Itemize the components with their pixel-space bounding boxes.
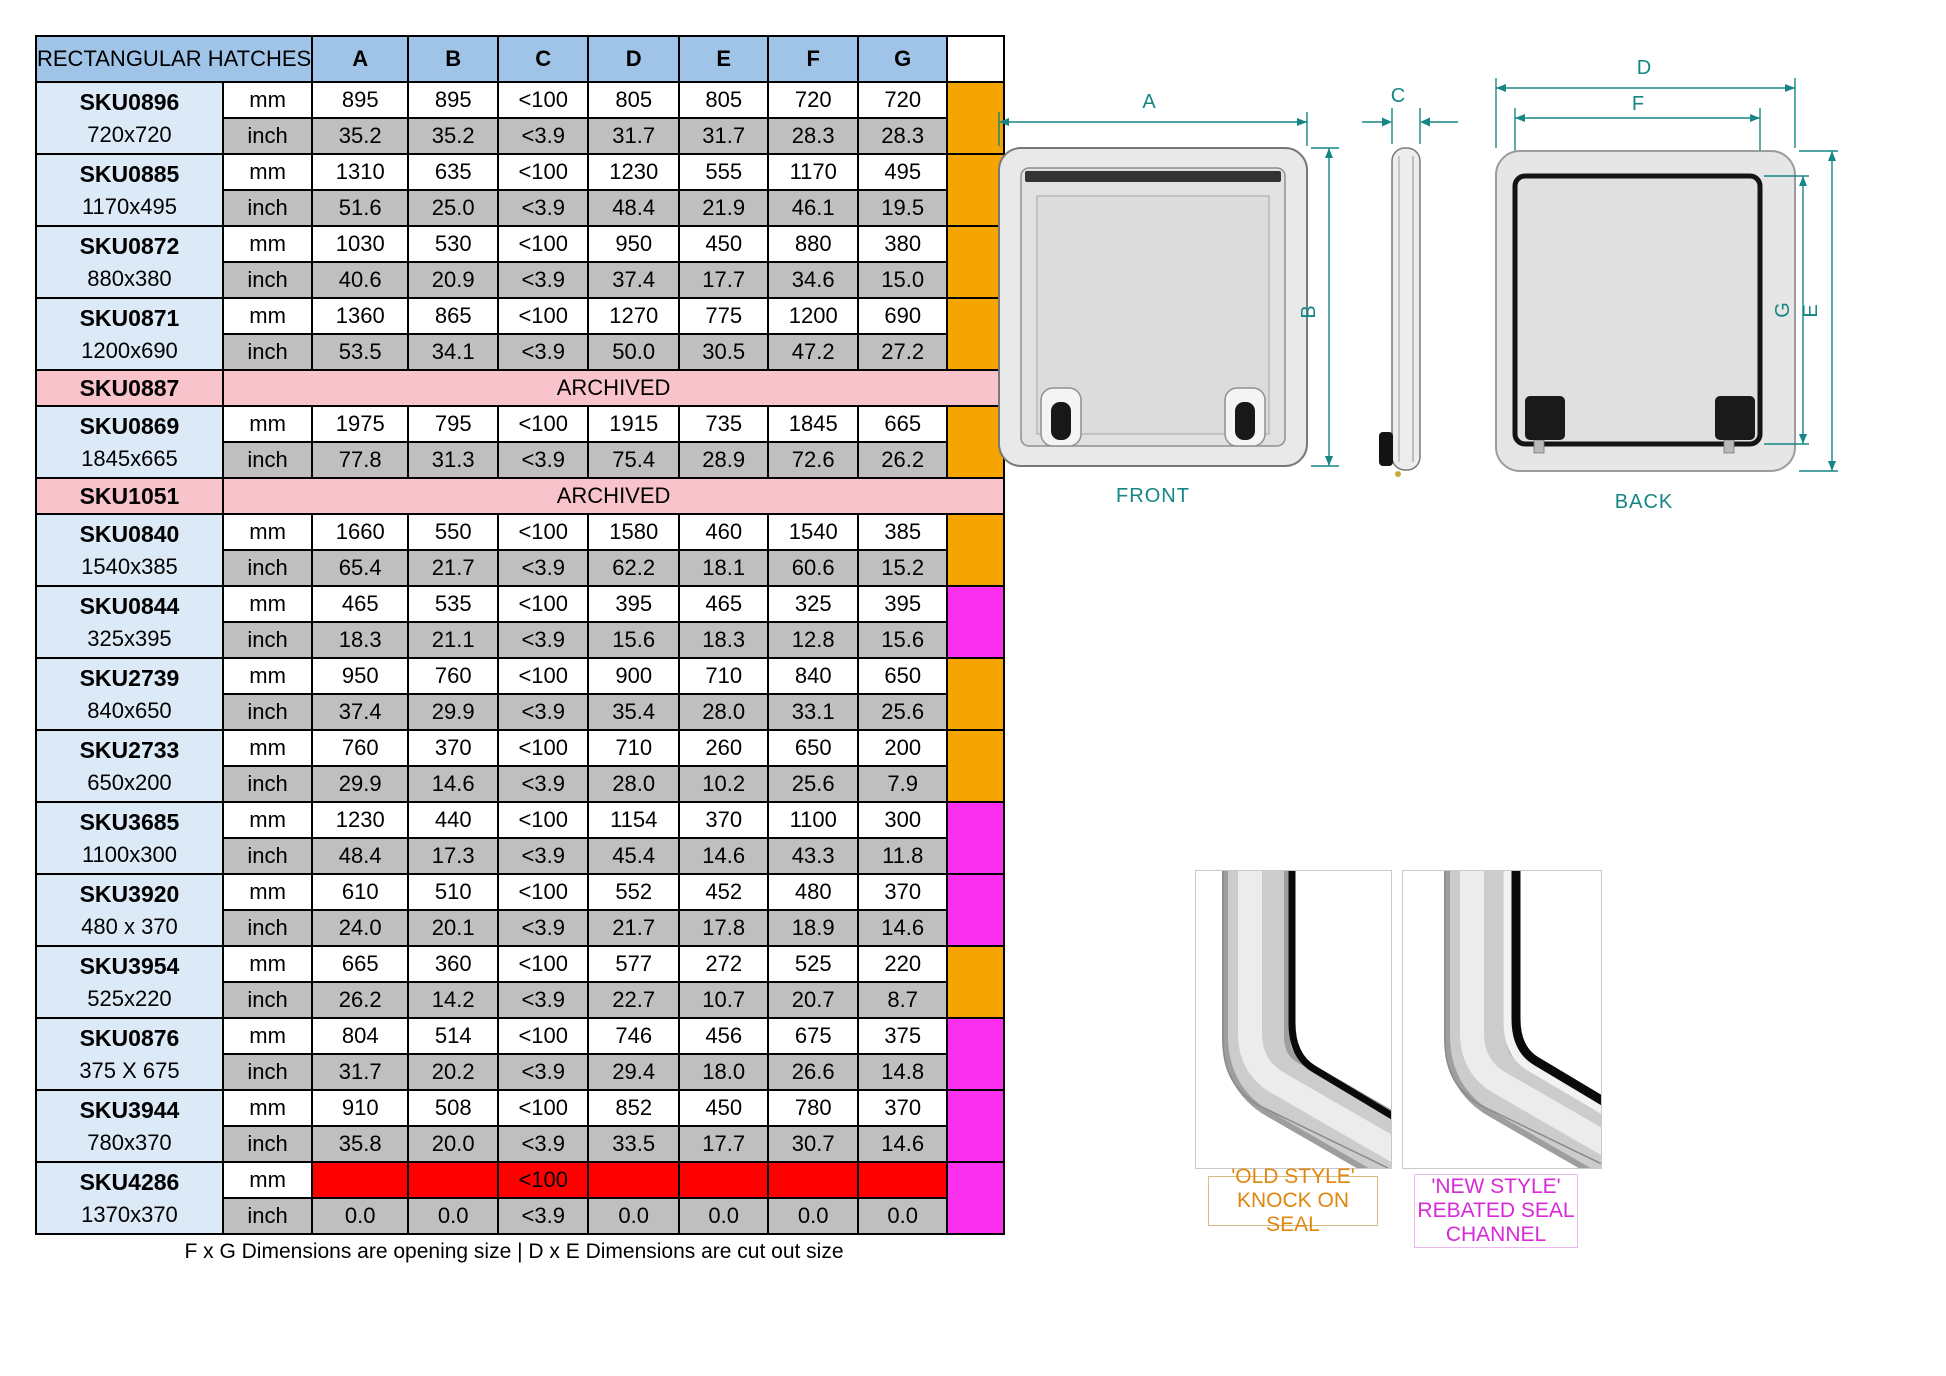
sku-cell: SKU2733650x200 <box>36 730 223 802</box>
value-cell-inch: 20.0 <box>408 1126 498 1162</box>
value-cell-mm: 1100 <box>768 802 858 838</box>
value-cell-inch: 77.8 <box>312 442 408 478</box>
dim-label-g: G <box>1772 302 1794 318</box>
new-style-caption: 'NEW STYLE' REBATED SEAL CHANNEL <box>1414 1174 1578 1248</box>
value-cell-mm <box>768 1162 858 1198</box>
value-cell-inch: 14.6 <box>408 766 498 802</box>
sku-row-mm: SKU42861370x370mm<100 <box>36 1162 1004 1198</box>
unit-cell-inch: inch <box>223 622 312 658</box>
unit-cell-inch: inch <box>223 694 312 730</box>
color-swatch-cell <box>947 730 1004 802</box>
sku-row-mm: SKU3954525x220mm665360<100577272525220 <box>36 946 1004 982</box>
front-view-label: FRONT <box>1116 485 1190 507</box>
sku-cell: SKU08401540x385 <box>36 514 223 586</box>
value-cell-inch: 14.6 <box>858 910 947 946</box>
unit-cell-mm: mm <box>223 658 312 694</box>
value-cell-mm: 525 <box>768 946 858 982</box>
value-cell-mm: 530 <box>408 226 498 262</box>
arrow-icon <box>1828 461 1836 471</box>
value-cell-inch: 17.8 <box>679 910 768 946</box>
value-cell-inch: 51.6 <box>312 190 408 226</box>
value-cell-inch: 20.7 <box>768 982 858 1018</box>
column-header-c: C <box>498 36 588 82</box>
value-cell-mm: 760 <box>312 730 408 766</box>
sku-row-mm: SKU2733650x200mm760370<100710260650200 <box>36 730 1004 766</box>
new-style-seal-image <box>1402 870 1602 1169</box>
value-cell-inch: 53.5 <box>312 334 408 370</box>
value-cell-mm: 370 <box>408 730 498 766</box>
value-cell-mm: 456 <box>679 1018 768 1054</box>
value-cell-inch: 45.4 <box>588 838 679 874</box>
value-cell-mm: 690 <box>858 298 947 334</box>
latch-handle-left <box>1051 402 1071 440</box>
back-latch-left <box>1525 396 1565 440</box>
value-cell-inch: 50.0 <box>588 334 679 370</box>
value-cell-inch: 22.7 <box>588 982 679 1018</box>
value-cell-inch: 28.3 <box>768 118 858 154</box>
value-cell-inch: <3.9 <box>498 622 588 658</box>
value-cell-inch: 27.2 <box>858 334 947 370</box>
value-cell-mm: 1230 <box>312 802 408 838</box>
hinge-pin-left <box>1534 440 1544 453</box>
unit-cell-mm: mm <box>223 1090 312 1126</box>
value-cell-mm: 746 <box>588 1018 679 1054</box>
value-cell-inch: 28.9 <box>679 442 768 478</box>
value-cell-mm: 804 <box>312 1018 408 1054</box>
sku-size-label: 1200x690 <box>37 335 222 366</box>
value-cell-inch: 31.7 <box>679 118 768 154</box>
value-cell-mm: 610 <box>312 874 408 910</box>
value-cell-mm: <100 <box>498 82 588 118</box>
value-cell-mm <box>588 1162 679 1198</box>
unit-cell-mm: mm <box>223 298 312 334</box>
value-cell-inch: 18.0 <box>679 1054 768 1090</box>
value-cell-inch: 15.2 <box>858 550 947 586</box>
sku-label: SKU4286 <box>37 1166 222 1199</box>
sku-cell: SKU08851170x495 <box>36 154 223 226</box>
sku-size-label: 1170x495 <box>37 191 222 222</box>
value-cell-inch: 29.9 <box>408 694 498 730</box>
value-cell-mm: 375 <box>858 1018 947 1054</box>
old-style-seal-image <box>1195 870 1392 1169</box>
value-cell-mm <box>408 1162 498 1198</box>
sku-row-mm: SKU0844325x395mm465535<100395465325395 <box>36 586 1004 622</box>
unit-cell-inch: inch <box>223 262 312 298</box>
value-cell-inch: <3.9 <box>498 262 588 298</box>
arrow-icon <box>1515 114 1525 122</box>
value-cell-mm: <100 <box>498 1090 588 1126</box>
hinge-pin-right <box>1724 440 1734 453</box>
value-cell-inch: 34.1 <box>408 334 498 370</box>
arrow-icon <box>1799 434 1807 444</box>
value-cell-mm: 1230 <box>588 154 679 190</box>
value-cell-mm: 552 <box>588 874 679 910</box>
value-cell-inch: 18.3 <box>679 622 768 658</box>
sku-label: SKU2739 <box>37 662 222 695</box>
value-cell-inch: 35.2 <box>408 118 498 154</box>
old-style-corner-render <box>1196 871 1391 1168</box>
value-cell-mm: 370 <box>858 874 947 910</box>
dim-label-e: E <box>1800 304 1822 317</box>
value-cell-mm: <100 <box>498 730 588 766</box>
new-style-caption-line1: 'NEW STYLE' <box>1415 1175 1577 1199</box>
value-cell-inch: <3.9 <box>498 1198 588 1234</box>
value-cell-inch: 0.0 <box>312 1198 408 1234</box>
arrow-icon <box>1828 151 1836 161</box>
value-cell-inch: 29.4 <box>588 1054 679 1090</box>
value-cell-mm: 535 <box>408 586 498 622</box>
unit-cell-mm: mm <box>223 82 312 118</box>
value-cell-mm: <100 <box>498 658 588 694</box>
value-cell-inch: 62.2 <box>588 550 679 586</box>
sku-cell: SKU3954525x220 <box>36 946 223 1018</box>
column-header-d: D <box>588 36 679 82</box>
value-cell-inch: 24.0 <box>312 910 408 946</box>
unit-cell-mm: mm <box>223 946 312 982</box>
arrow-icon <box>1382 118 1392 127</box>
arrow-icon <box>1420 118 1430 127</box>
value-cell-inch: 10.7 <box>679 982 768 1018</box>
sku-row-mm: SKU2739840x650mm950760<100900710840650 <box>36 658 1004 694</box>
arrow-icon <box>1325 148 1333 158</box>
value-cell-inch: 12.8 <box>768 622 858 658</box>
sku-label: SKU0896 <box>37 86 222 119</box>
sku-cell: SKU08691845x665 <box>36 406 223 478</box>
archived-status-cell: ARCHIVED <box>223 478 1004 514</box>
value-cell-inch: 14.2 <box>408 982 498 1018</box>
new-style-corner-render <box>1403 871 1601 1168</box>
value-cell-mm: 665 <box>312 946 408 982</box>
old-style-caption-line1: 'OLD STYLE' <box>1209 1165 1377 1189</box>
value-cell-mm: 1310 <box>312 154 408 190</box>
value-cell-inch: <3.9 <box>498 442 588 478</box>
value-cell-mm: 325 <box>768 586 858 622</box>
color-swatch-cell <box>947 802 1004 874</box>
value-cell-inch: 29.9 <box>312 766 408 802</box>
value-cell-inch: 18.3 <box>312 622 408 658</box>
value-cell-inch: 18.9 <box>768 910 858 946</box>
hinge-bar <box>1025 171 1281 182</box>
sku-row-mm: SKU0896720x720mm895895<100805805720720 <box>36 82 1004 118</box>
sku-size-label: 650x200 <box>37 767 222 798</box>
table-title: RECTANGULAR HATCHES <box>36 36 312 82</box>
color-swatch-cell <box>947 946 1004 1018</box>
value-cell-inch: 0.0 <box>679 1198 768 1234</box>
value-cell-inch: 18.1 <box>679 550 768 586</box>
side-screw <box>1395 471 1401 477</box>
value-cell-inch: 21.7 <box>408 550 498 586</box>
value-cell-mm: 1915 <box>588 406 679 442</box>
back-view-drawing: D F G E BACK <box>1468 50 1946 525</box>
table-footnote: F x G Dimensions are opening size | D x … <box>35 1240 993 1264</box>
value-cell-mm: 760 <box>408 658 498 694</box>
sku-size-label: 1100x300 <box>37 839 222 870</box>
color-swatch-cell <box>947 514 1004 586</box>
archived-row: SKU0887ARCHIVED <box>36 370 1004 406</box>
unit-cell-mm: mm <box>223 154 312 190</box>
value-cell-mm: 1030 <box>312 226 408 262</box>
unit-cell-inch: inch <box>223 1054 312 1090</box>
value-cell-mm: 880 <box>768 226 858 262</box>
value-cell-mm: <100 <box>498 586 588 622</box>
dim-label-f: F <box>1632 93 1644 115</box>
sku-cell: SKU08711200x690 <box>36 298 223 370</box>
value-cell-mm: <100 <box>498 226 588 262</box>
value-cell-inch: 31.3 <box>408 442 498 478</box>
sku-cell: SKU0896720x720 <box>36 82 223 154</box>
sku-size-label: 325x395 <box>37 623 222 654</box>
value-cell-mm: 450 <box>679 226 768 262</box>
value-cell-mm: 550 <box>408 514 498 550</box>
table-header-row: RECTANGULAR HATCHES A B C D E F G <box>36 36 1004 82</box>
sku-label: SKU1051 <box>37 480 222 513</box>
unit-cell-inch: inch <box>223 1126 312 1162</box>
value-cell-inch: 33.1 <box>768 694 858 730</box>
dim-label-c: C <box>1391 85 1405 107</box>
sku-row-mm: SKU0872880x380mm1030530<100950450880380 <box>36 226 1004 262</box>
sku-row-mm: SKU36851100x300mm1230440<100115437011003… <box>36 802 1004 838</box>
value-cell-mm: 1580 <box>588 514 679 550</box>
arrow-icon <box>1785 84 1795 92</box>
value-cell-inch: 10.2 <box>679 766 768 802</box>
value-cell-mm: 650 <box>768 730 858 766</box>
value-cell-mm: <100 <box>498 1018 588 1054</box>
value-cell-inch: 35.2 <box>312 118 408 154</box>
unit-cell-inch: inch <box>223 838 312 874</box>
dim-label-b: B <box>1298 305 1320 318</box>
value-cell-mm: 395 <box>858 586 947 622</box>
sku-label: SKU0840 <box>37 518 222 551</box>
value-cell-inch: 15.0 <box>858 262 947 298</box>
value-cell-mm: 720 <box>858 82 947 118</box>
side-profile <box>1392 148 1420 470</box>
value-cell-inch: 30.7 <box>768 1126 858 1162</box>
value-cell-mm: 840 <box>768 658 858 694</box>
new-style-caption-line2: REBATED SEAL <box>1415 1199 1577 1223</box>
value-cell-inch: <3.9 <box>498 982 588 1018</box>
sku-cell: SKU3944780x370 <box>36 1090 223 1162</box>
old-style-caption-line2: KNOCK ON SEAL <box>1209 1189 1377 1237</box>
value-cell-inch: <3.9 <box>498 550 588 586</box>
value-cell-mm: 775 <box>679 298 768 334</box>
sku-label: SKU0871 <box>37 302 222 335</box>
color-swatch-cell <box>947 1162 1004 1234</box>
value-cell-inch: 17.7 <box>679 262 768 298</box>
value-cell-mm: 220 <box>858 946 947 982</box>
sku-row-mm: SKU08851170x495mm1310635<100123055511704… <box>36 154 1004 190</box>
arrow-icon <box>1496 84 1506 92</box>
value-cell-inch: 21.9 <box>679 190 768 226</box>
value-cell-mm: 480 <box>768 874 858 910</box>
value-cell-inch: <3.9 <box>498 334 588 370</box>
value-cell-mm: 200 <box>858 730 947 766</box>
value-cell-inch: <3.9 <box>498 1054 588 1090</box>
value-cell-mm: 1975 <box>312 406 408 442</box>
value-cell-inch: 35.8 <box>312 1126 408 1162</box>
sku-row-mm: SKU3920480 x 370mm610510<100552452480370 <box>36 874 1004 910</box>
dim-label-a: A <box>1142 91 1156 113</box>
sku-cell: SKU36851100x300 <box>36 802 223 874</box>
sku-size-label: 780x370 <box>37 1127 222 1158</box>
value-cell-mm: 795 <box>408 406 498 442</box>
sku-cell: SKU3920480 x 370 <box>36 874 223 946</box>
back-view-label: BACK <box>1615 491 1673 513</box>
value-cell-mm: 370 <box>679 802 768 838</box>
arrow-icon <box>1297 118 1307 126</box>
sku-label: SKU3944 <box>37 1094 222 1127</box>
unit-cell-mm: mm <box>223 1018 312 1054</box>
value-cell-mm: 440 <box>408 802 498 838</box>
unit-cell-inch: inch <box>223 118 312 154</box>
value-cell-inch: 25.0 <box>408 190 498 226</box>
value-cell-inch: 0.0 <box>858 1198 947 1234</box>
value-cell-mm: <100 <box>498 1162 588 1198</box>
color-swatch-cell <box>947 874 1004 946</box>
unit-cell-mm: mm <box>223 586 312 622</box>
value-cell-mm: 380 <box>858 226 947 262</box>
value-cell-inch: 34.6 <box>768 262 858 298</box>
sku-size-label: 880x380 <box>37 263 222 294</box>
unit-cell-mm: mm <box>223 514 312 550</box>
value-cell-mm: 900 <box>588 658 679 694</box>
value-cell-mm <box>679 1162 768 1198</box>
value-cell-inch: <3.9 <box>498 766 588 802</box>
value-cell-mm: 780 <box>768 1090 858 1126</box>
unit-cell-mm: mm <box>223 874 312 910</box>
value-cell-inch: 17.7 <box>679 1126 768 1162</box>
side-view-drawing: C <box>1358 58 1473 520</box>
value-cell-mm: 1360 <box>312 298 408 334</box>
value-cell-mm: 710 <box>588 730 679 766</box>
value-cell-inch: 35.4 <box>588 694 679 730</box>
sku-row-mm: SKU08691845x665mm1975795<100191573518456… <box>36 406 1004 442</box>
hatch-table: RECTANGULAR HATCHES A B C D E F G SKU089… <box>35 35 1005 1235</box>
value-cell-mm: 805 <box>588 82 679 118</box>
sku-label: SKU0872 <box>37 230 222 263</box>
unit-cell-inch: inch <box>223 442 312 478</box>
unit-cell-mm: mm <box>223 802 312 838</box>
sku-size-label: 1370x370 <box>37 1199 222 1230</box>
value-cell-mm: 1170 <box>768 154 858 190</box>
value-cell-inch: 19.5 <box>858 190 947 226</box>
value-cell-inch: 30.5 <box>679 334 768 370</box>
value-cell-inch: 11.8 <box>858 838 947 874</box>
sku-size-label: 720x720 <box>37 119 222 150</box>
sku-size-label: 375 X 675 <box>37 1055 222 1086</box>
value-cell-mm: 452 <box>679 874 768 910</box>
value-cell-inch: 7.9 <box>858 766 947 802</box>
value-cell-inch: 20.1 <box>408 910 498 946</box>
value-cell-inch: 48.4 <box>312 838 408 874</box>
value-cell-inch: 28.0 <box>679 694 768 730</box>
sku-label: SKU3954 <box>37 950 222 983</box>
value-cell-mm: <100 <box>498 802 588 838</box>
value-cell-inch: 14.8 <box>858 1054 947 1090</box>
archived-status-cell: ARCHIVED <box>223 370 1004 406</box>
value-cell-mm: 385 <box>858 514 947 550</box>
sku-size-label: 1845x665 <box>37 443 222 474</box>
color-swatch-cell <box>947 1018 1004 1090</box>
sku-label: SKU0885 <box>37 158 222 191</box>
value-cell-mm: <100 <box>498 154 588 190</box>
unit-cell-inch: inch <box>223 1198 312 1234</box>
value-cell-inch: 20.9 <box>408 262 498 298</box>
value-cell-mm: 805 <box>679 82 768 118</box>
value-cell-inch: 65.4 <box>312 550 408 586</box>
unit-cell-mm: mm <box>223 1162 312 1198</box>
value-cell-mm: 370 <box>858 1090 947 1126</box>
sku-label: SKU0876 <box>37 1022 222 1055</box>
value-cell-inch: 14.6 <box>679 838 768 874</box>
column-header-e: E <box>679 36 768 82</box>
new-style-caption-line3: CHANNEL <box>1415 1223 1577 1247</box>
value-cell-inch: 17.3 <box>408 838 498 874</box>
sku-label: SKU0887 <box>37 372 222 405</box>
sku-size-label: 525x220 <box>37 983 222 1014</box>
sku-label: SKU3685 <box>37 806 222 839</box>
value-cell-inch: 15.6 <box>858 622 947 658</box>
arrow-icon <box>1750 114 1760 122</box>
value-cell-mm: <100 <box>498 406 588 442</box>
value-cell-mm: <100 <box>498 874 588 910</box>
value-cell-mm: <100 <box>498 298 588 334</box>
unit-cell-mm: mm <box>223 406 312 442</box>
value-cell-mm <box>312 1162 408 1198</box>
color-swatch-cell <box>947 586 1004 658</box>
page: RECTANGULAR HATCHES A B C D E F G SKU089… <box>0 0 1946 1376</box>
value-cell-mm: <100 <box>498 514 588 550</box>
arrow-icon <box>999 118 1009 126</box>
dim-label-d: D <box>1637 57 1651 79</box>
value-cell-mm: 1154 <box>588 802 679 838</box>
unit-cell-inch: inch <box>223 766 312 802</box>
value-cell-mm: 650 <box>858 658 947 694</box>
value-cell-inch: 37.4 <box>588 262 679 298</box>
value-cell-inch: 33.5 <box>588 1126 679 1162</box>
unit-cell-inch: inch <box>223 550 312 586</box>
value-cell-inch: 28.3 <box>858 118 947 154</box>
unit-cell-inch: inch <box>223 190 312 226</box>
old-style-caption: 'OLD STYLE' KNOCK ON SEAL <box>1208 1176 1378 1226</box>
value-cell-inch: 25.6 <box>768 766 858 802</box>
value-cell-inch: 31.7 <box>312 1054 408 1090</box>
value-cell-mm: 665 <box>858 406 947 442</box>
value-cell-inch: 25.6 <box>858 694 947 730</box>
value-cell-mm: 495 <box>858 154 947 190</box>
value-cell-inch: 40.6 <box>312 262 408 298</box>
sku-row-mm: SKU0876375 X 675mm804514<100746456675375 <box>36 1018 1004 1054</box>
sku-cell: SKU2739840x650 <box>36 658 223 730</box>
value-cell-mm: 1660 <box>312 514 408 550</box>
value-cell-mm: 735 <box>679 406 768 442</box>
value-cell-inch: <3.9 <box>498 118 588 154</box>
value-cell-inch: 8.7 <box>858 982 947 1018</box>
value-cell-inch: 0.0 <box>408 1198 498 1234</box>
value-cell-mm: 514 <box>408 1018 498 1054</box>
sku-cell: SKU0844325x395 <box>36 586 223 658</box>
sku-size-label: 840x650 <box>37 695 222 726</box>
sku-label: SKU0844 <box>37 590 222 623</box>
unit-cell-mm: mm <box>223 226 312 262</box>
value-cell-mm: 510 <box>408 874 498 910</box>
value-cell-inch: <3.9 <box>498 910 588 946</box>
value-cell-inch: 26.2 <box>858 442 947 478</box>
unit-cell-mm: mm <box>223 730 312 766</box>
value-cell-mm: 460 <box>679 514 768 550</box>
value-cell-mm: 555 <box>679 154 768 190</box>
sku-row-mm: SKU3944780x370mm910508<100852450780370 <box>36 1090 1004 1126</box>
value-cell-inch: <3.9 <box>498 838 588 874</box>
